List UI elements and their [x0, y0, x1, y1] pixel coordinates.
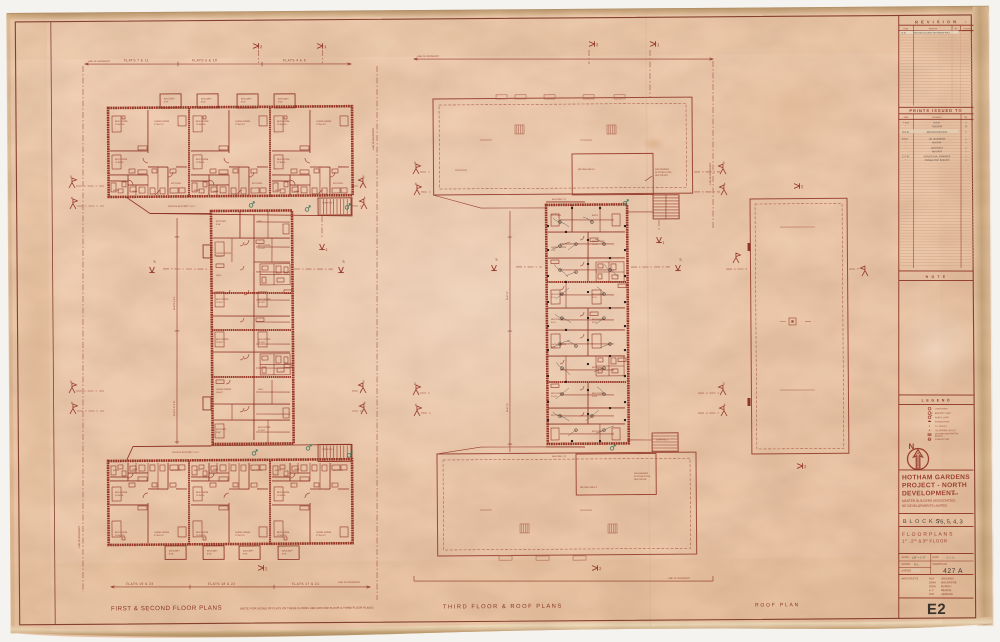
svg-text:5: 5: [679, 258, 681, 262]
svg-text:PUBLIC LIGHT: PUBLIC LIGHT: [935, 417, 950, 419]
svg-text:LIGHT POINT: LIGHT POINT: [935, 408, 949, 410]
svg-text:BED ROOM: BED ROOM: [115, 121, 127, 123]
svg-text:DEVELOPMENT: DEVELOPMENT: [902, 490, 956, 497]
svg-text:A: A: [929, 428, 931, 432]
svg-text:4: 4: [724, 182, 726, 186]
svg-text:BATH: BATH: [592, 366, 598, 369]
svg-text:HALL: HALL: [132, 468, 138, 471]
svg-text:LINE OF BOUNDARY: LINE OF BOUNDARY: [78, 525, 81, 548]
svg-text:9'x8': 9'x8': [216, 224, 221, 226]
svg-text:SIMPSON: SIMPSON: [941, 593, 953, 596]
svg-text:4: 4: [415, 182, 417, 186]
svg-text:THIRD FLOOR & ROOF PLANS: THIRD FLOOR & ROOF PLANS: [443, 604, 563, 611]
svg-text:LIVING ROOM: LIVING ROOM: [154, 532, 169, 534]
svg-text:BATH: BATH: [275, 469, 281, 472]
svg-text:W.L.: W.L.: [914, 562, 919, 566]
svg-text:3: 3: [363, 175, 365, 179]
svg-text:24.9: 24.9: [551, 347, 556, 349]
svg-text:12.4: 12.4: [551, 297, 556, 299]
svg-text:KITCHEN: KITCHEN: [252, 470, 262, 472]
svg-text:11'0x9'6: 11'0x9'6: [196, 495, 205, 497]
svg-text:BALCONY: BALCONY: [169, 549, 180, 552]
svg-text:4: 4: [724, 403, 726, 407]
svg-text:N O T E: N O T E: [926, 275, 947, 279]
svg-text:16'x12': 16'x12': [216, 392, 224, 394]
svg-text:FLATS 4 & 8: FLATS 4 & 8: [283, 58, 306, 62]
svg-text:HALL: HALL: [213, 468, 219, 471]
svg-text:ACCESS BALCONY 2 & 4: ACCESS BALCONY 2 & 4: [172, 451, 199, 454]
svg-text:DATE: DATE: [933, 556, 939, 559]
svg-text:9'x4': 9'x4': [207, 554, 212, 556]
svg-text:4: 4: [364, 401, 366, 405]
svg-text:STAIR No 2: STAIR No 2: [656, 438, 669, 441]
svg-text:11'6x10'6: 11'6x10'6: [115, 535, 125, 537]
svg-text:3: 3: [414, 161, 416, 165]
svg-text:9'x4': 9'x4': [169, 553, 174, 555]
svg-text:5: 5: [342, 260, 344, 264]
svg-text:12.9: 12.9: [551, 250, 556, 252]
svg-text:Checked: Checked: [963, 28, 970, 30]
svg-text:PROJECT - NORTH: PROJECT - NORTH: [902, 482, 967, 489]
svg-text:BED ROOM: BED ROOM: [277, 532, 289, 534]
svg-text:KITCHEN: KITCHEN: [216, 429, 226, 431]
svg-text:3: 3: [70, 380, 72, 384]
svg-text:9'x8': 9'x8': [216, 432, 221, 434]
svg-text:11'0x9'6: 11'0x9'6: [115, 495, 124, 497]
svg-text:J.M. SEABROOK: J.M. SEABROOK: [928, 138, 946, 141]
svg-text:11'6x10'6: 11'6x10'6: [277, 124, 287, 126]
svg-text:9'x4': 9'x4': [241, 101, 246, 103]
svg-text:4: 4: [364, 196, 366, 200]
svg-text:LIVING ROOM: LIVING ROOM: [216, 253, 231, 255]
svg-text:ACCESS BALCONY 1 & 3: ACCESS BALCONY 1 & 3: [168, 205, 195, 208]
svg-text:MOCKRIDGE: MOCKRIDGE: [941, 581, 957, 584]
svg-text:FLATS 5 & 9: FLATS 5 & 9: [173, 296, 176, 310]
svg-text:SEE DETAIL: SEE DETAIL: [634, 478, 648, 481]
svg-text:4: 4: [71, 196, 73, 200]
svg-text:LINE OF BOUNDARY: LINE OF BOUNDARY: [668, 577, 691, 580]
svg-text:11'x10': 11'x10': [258, 342, 266, 344]
svg-text:BALCONY 24: BALCONY 24: [552, 455, 567, 458]
svg-text:KITCHEN: KITCHEN: [333, 183, 343, 185]
svg-text:HALL: HALL: [258, 388, 264, 391]
svg-text:9'x4': 9'x4': [164, 101, 169, 103]
svg-text:BED ROOM: BED ROOM: [258, 427, 270, 429]
svg-text:BATH: BATH: [113, 469, 119, 472]
svg-text:DRAWING No.: DRAWING No.: [932, 563, 948, 566]
svg-text:11'0x9'6: 11'0x9'6: [277, 162, 286, 164]
svg-text:MASTER BUILDERS: MASTER BUILDERS: [927, 131, 948, 134]
svg-text:PRINTS ISSUED TO: PRINTS ISSUED TO: [909, 108, 962, 113]
svg-text:Date: Date: [904, 116, 909, 119]
svg-text:RD: RD: [925, 540, 929, 542]
svg-text:POWER POINT: POWER POINT: [935, 421, 950, 423]
svg-text:L E G E N D: L E G E N D: [922, 398, 951, 402]
svg-text:28.4.61: 28.4.61: [902, 132, 910, 134]
svg-text:BALCONY: BALCONY: [278, 97, 289, 100]
svg-text:FLATS 17 & 21: FLATS 17 & 21: [173, 400, 176, 416]
svg-text:FLATS 6 & 10: FLATS 6 & 10: [192, 58, 217, 62]
svg-text:BED ROOM: BED ROOM: [277, 121, 289, 123]
svg-text:SCALE: SCALE: [902, 556, 910, 559]
svg-text:DRYING AREA 1: DRYING AREA 1: [578, 168, 596, 171]
svg-text:1: 1: [325, 248, 327, 252]
svg-text:ROY: ROY: [929, 593, 935, 596]
svg-text:SEE DETAIL: SEE DETAIL: [655, 174, 669, 177]
svg-text:BED ROOM: BED ROOM: [258, 245, 270, 247]
svg-text:FLATS 7 & 11: FLATS 7 & 11: [124, 58, 149, 62]
svg-text:FLAT 12: FLAT 12: [506, 291, 509, 300]
svg-text:BALCONY 12: BALCONY 12: [552, 198, 567, 201]
svg-text:BATH: BATH: [592, 214, 598, 217]
svg-text:BED ROOM: BED ROOM: [277, 159, 289, 161]
svg-text:CLOTHES LINE: CLOTHES LINE: [655, 172, 672, 174]
svg-text:3: 3: [70, 175, 72, 179]
svg-text:LIVING ROOM: LIVING ROOM: [316, 121, 331, 123]
svg-text:HALL: HALL: [132, 190, 138, 193]
svg-text:F L O O R P L A N S: F L O O R P L A N S: [902, 532, 953, 538]
svg-text:9'x4': 9'x4': [278, 101, 283, 103]
svg-text:BALCONY: BALCONY: [241, 97, 252, 100]
svg-text:GROUNDS: GROUNDS: [941, 577, 954, 580]
svg-text:16'x12': 16'x12': [216, 256, 224, 258]
svg-text:BED ROOM: BED ROOM: [115, 532, 127, 534]
svg-text:BED ROOM: BED ROOM: [216, 339, 228, 341]
svg-text:3: 3: [723, 161, 725, 165]
svg-text:11'0x9'6: 11'0x9'6: [196, 162, 205, 164]
svg-text:CONTRACT: CONTRACT: [931, 147, 944, 150]
svg-text:3: 3: [363, 380, 365, 384]
svg-text:17'0x11'3: 17'0x11'3: [316, 124, 326, 126]
svg-text:11'x10': 11'x10': [258, 248, 266, 250]
svg-text:8.6.61: 8.6.61: [902, 138, 909, 140]
svg-text:11'x10': 11'x10': [258, 430, 266, 432]
svg-text:BOARD: BOARD: [935, 435, 943, 438]
svg-text:BED ROOM: BED ROOM: [551, 393, 563, 395]
svg-text:BED ROOM: BED ROOM: [196, 121, 208, 123]
svg-text:12.10: 12.10: [592, 244, 598, 246]
svg-text:12.5: 12.5: [592, 297, 597, 299]
svg-text:BATH: BATH: [113, 189, 119, 192]
svg-text:DRAWN: DRAWN: [901, 563, 910, 566]
svg-text:3: 3: [414, 382, 416, 386]
svg-text:76, 5, 4, 3: 76, 5, 4, 3: [937, 519, 963, 525]
svg-text:LINE OF BOUNDARY: LINE OF BOUNDARY: [709, 162, 712, 185]
svg-text:STAIR No 1: STAIR No 1: [322, 201, 335, 204]
svg-text:FLATS 19 & 23: FLATS 19 & 23: [126, 582, 153, 586]
svg-text:CLOTHES LINE: CLOTHES LINE: [634, 476, 651, 478]
svg-text:BALCONY: BALCONY: [243, 549, 254, 552]
svg-text:Issued to: Issued to: [933, 116, 943, 119]
svg-text:Revision: Revision: [929, 28, 938, 30]
svg-text:FIRST & SECOND FLOOR PLANS: FIRST & SECOND FLOOR PLANS: [111, 605, 222, 613]
svg-text:M.M.B.W.: M.M.B.W.: [932, 142, 942, 144]
svg-text:FLOOR: FLOOR: [930, 538, 948, 543]
svg-text:TENDERS: TENDERS: [932, 126, 943, 128]
svg-text:LINE OF BOUNDARY: LINE OF BOUNDARY: [372, 127, 375, 150]
svg-text:12'x10': 12'x10': [216, 302, 224, 304]
svg-text:BATH: BATH: [275, 189, 281, 192]
svg-text:5: 5: [153, 260, 155, 264]
svg-text:PEARCE: PEARCE: [941, 589, 952, 592]
svg-text:KITCHEN: KITCHEN: [171, 183, 181, 185]
svg-text:TELEPHONE OUTLET: TELEPHONE OUTLET: [935, 430, 957, 432]
svg-text:KITCHEN: KITCHEN: [333, 470, 343, 472]
svg-text:BATH: BATH: [194, 189, 200, 192]
svg-text:1/8" = 1'-0": 1/8" = 1'-0": [912, 555, 926, 559]
svg-text:CONSULTANT BUILDER: CONSULTANT BUILDER: [925, 159, 950, 162]
svg-text:EXHAUST FAN: EXHAUST FAN: [935, 438, 950, 441]
svg-text:17'0x11'3: 17'0x11'3: [154, 124, 164, 126]
svg-text:24.4: 24.4: [551, 322, 556, 324]
svg-text:12'x10': 12'x10': [216, 342, 224, 344]
svg-text:11'0x9'6: 11'0x9'6: [115, 162, 124, 164]
svg-text:BED ROOM: BED ROOM: [216, 299, 228, 301]
svg-text:BALCONY: BALCONY: [207, 549, 218, 552]
svg-text:11'6x10'6: 11'6x10'6: [277, 535, 287, 537]
svg-text:KITCHEN: KITCHEN: [216, 221, 226, 223]
svg-text:LIVING ROOM: LIVING ROOM: [235, 532, 250, 534]
svg-text:BED ROOM: BED ROOM: [258, 299, 270, 301]
svg-text:ARCHITECTS: ARCHITECTS: [901, 576, 918, 580]
svg-text:T.V. OUTLET: T.V. OUTLET: [935, 426, 948, 428]
svg-text:17'0x11'3: 17'0x11'3: [154, 535, 164, 537]
svg-text:B L O C K S: B L O C K S: [903, 519, 940, 525]
svg-text:MASTER BUILDERS (ASSOCIATED): MASTER BUILDERS (ASSOCIATED): [902, 499, 955, 503]
svg-text:11'6x10'6: 11'6x10'6: [115, 124, 125, 126]
svg-text:BALCONY: BALCONY: [282, 549, 293, 552]
svg-text:BED ROOM: BED ROOM: [115, 492, 127, 494]
svg-text:R E V I S I O N: R E V I S I O N: [915, 19, 957, 24]
svg-text:BED ROOM: BED ROOM: [115, 159, 127, 161]
svg-text:LINE OF BOUNDARY: LINE OF BOUNDARY: [338, 581, 361, 584]
svg-text:7.4.61: 7.4.61: [903, 122, 910, 124]
svg-text:BED ROOM: BED ROOM: [277, 492, 289, 494]
svg-text:LINE OF BOUNDARY: LINE OF BOUNDARY: [417, 55, 440, 58]
svg-text:E2: E2: [927, 601, 946, 618]
svg-text:STRUCTURAL ENGINEER: STRUCTURAL ENGINEER: [924, 155, 951, 158]
svg-text:BATH: BATH: [194, 469, 200, 472]
svg-text:W.C.: W.C.: [258, 221, 263, 223]
svg-text:JOHN: JOHN: [929, 581, 936, 584]
svg-text:BALCONY: BALCONY: [201, 97, 212, 100]
svg-text:1: 1: [663, 241, 665, 245]
svg-text:4: 4: [415, 403, 417, 407]
svg-text:ROOF PLAN: ROOF PLAN: [755, 602, 800, 608]
svg-text:BED ROOM: BED ROOM: [196, 159, 208, 161]
svg-text:24.10: 24.10: [551, 396, 557, 398]
svg-text:427 A: 427 A: [943, 568, 963, 575]
svg-text:9'x4': 9'x4': [282, 553, 287, 555]
svg-text:12.7.61: 12.7.61: [902, 156, 910, 158]
svg-text:RE DEVELOPMENTS LIMITED: RE DEVELOPMENTS LIMITED: [902, 504, 948, 508]
svg-text:11'x10': 11'x10': [258, 302, 266, 304]
svg-text:LIVING ROOM: LIVING ROOM: [316, 532, 331, 534]
svg-text:FLATS 18 & 22: FLATS 18 & 22: [208, 582, 235, 586]
svg-text:KITCHEN: KITCHEN: [551, 215, 561, 217]
svg-text:11'6x10'6: 11'6x10'6: [196, 535, 206, 537]
svg-text:HALL: HALL: [216, 274, 222, 277]
svg-text:GALVANISED: GALVANISED: [655, 168, 670, 171]
svg-text:4: 4: [71, 401, 73, 405]
svg-text:11'0x9'6: 11'0x9'6: [277, 495, 286, 497]
svg-text:9'x4': 9'x4': [243, 553, 248, 555]
svg-text:BUILDER: BUILDER: [932, 151, 942, 153]
svg-text:3: 3: [723, 382, 725, 386]
svg-text:LIVING ROOM: LIVING ROOM: [216, 389, 231, 391]
svg-text:24.11: 24.11: [592, 396, 598, 398]
svg-text:M.B.R.: M.B.R.: [934, 122, 941, 124]
svg-text:LIVING ROOM: LIVING ROOM: [154, 121, 169, 123]
svg-text:BALCONY: BALCONY: [164, 97, 175, 100]
svg-text:FLAT 24: FLAT 24: [506, 403, 509, 412]
svg-text:GALVANISED: GALVANISED: [634, 472, 649, 475]
svg-text:17'0x11'3: 17'0x11'3: [235, 124, 245, 126]
svg-text:BED ROOM: BED ROOM: [196, 532, 208, 534]
svg-text:BED ROOM: BED ROOM: [258, 339, 270, 341]
svg-text:BED ROOM: BED ROOM: [196, 492, 208, 494]
svg-text:STAIR No 2: STAIR No 2: [322, 448, 335, 451]
svg-text:KITCHEN: KITCHEN: [252, 183, 262, 185]
svg-text:LINE OF BOUNDARY: LINE OF BOUNDARY: [88, 60, 111, 63]
svg-text:HALL: HALL: [294, 468, 300, 471]
svg-text:BRACKET LIGHT: BRACKET LIGHT: [935, 412, 952, 415]
svg-text:DRYING AREA 2: DRYING AREA 2: [580, 486, 598, 489]
svg-text:20.3.61: 20.3.61: [946, 555, 955, 559]
svg-text:5: 5: [495, 258, 497, 262]
svg-text:ND: ND: [914, 540, 918, 542]
svg-text:No.: No.: [964, 117, 968, 119]
svg-text:HALL: HALL: [213, 190, 219, 193]
svg-text:ROY: ROY: [929, 577, 935, 580]
svg-text:FLATS 17 & 21: FLATS 17 & 21: [292, 582, 319, 586]
svg-text:9'x4': 9'x4': [201, 101, 206, 103]
svg-text:MURPHY: MURPHY: [941, 585, 952, 588]
svg-text:HOTHAM GARDENS: HOTHAM GARDENS: [902, 474, 970, 482]
svg-text:JOHN: JOHN: [929, 585, 936, 588]
svg-text:17'0x11'3: 17'0x11'3: [235, 535, 245, 537]
svg-text:17'0x11'3: 17'0x11'3: [316, 535, 326, 537]
svg-text:Date: Date: [904, 27, 909, 30]
svg-text:11'6x10'6: 11'6x10'6: [196, 124, 206, 126]
svg-text:KITCHEN: KITCHEN: [171, 470, 181, 472]
svg-text:A. F.: A. F.: [929, 589, 934, 592]
svg-text:LIVING ROOM: LIVING ROOM: [235, 121, 250, 123]
svg-text:HALL: HALL: [294, 190, 300, 193]
svg-text:FOR: FOR: [952, 492, 959, 496]
